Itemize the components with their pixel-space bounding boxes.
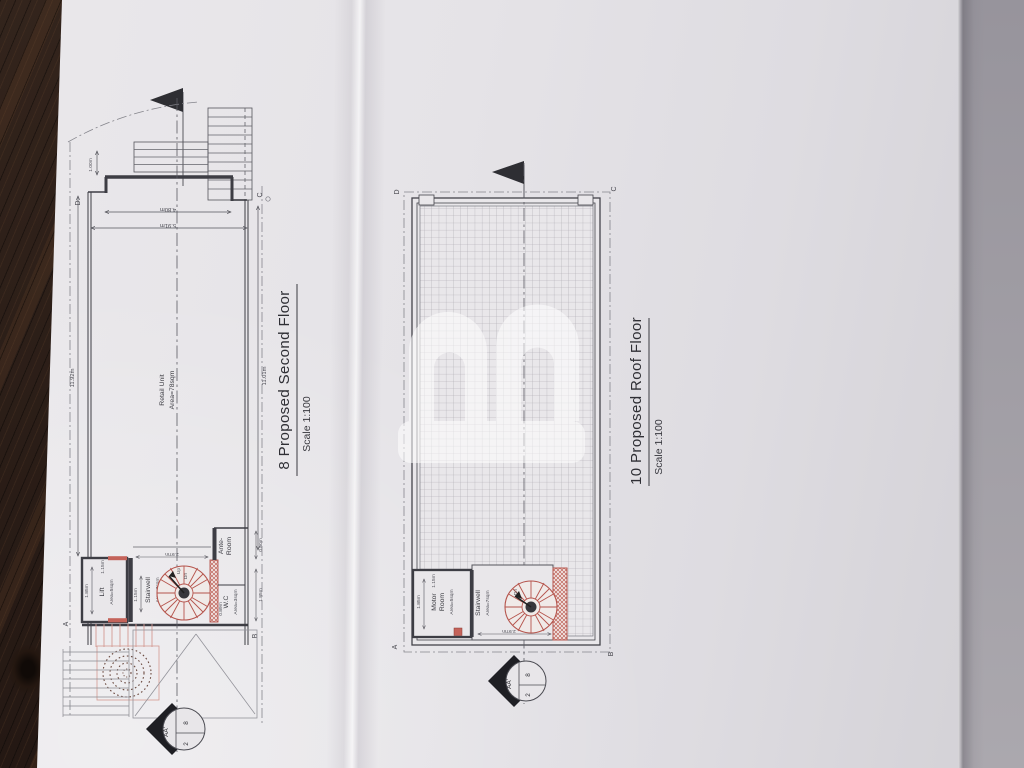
retail-unit-label: Retail Unit bbox=[159, 374, 166, 405]
wall-cap bbox=[419, 195, 434, 205]
stairwell-area: Area=7sqm bbox=[485, 590, 491, 615]
stair-dn-label: Dn bbox=[513, 589, 519, 596]
photo-of-architectural-plans: 1.00m 4.80m 5.91m 11.92m 11.01m Retail U… bbox=[0, 0, 1024, 768]
section-marker: AA' 2 8 bbox=[488, 655, 546, 707]
corner-d: D bbox=[75, 200, 82, 205]
external-stair bbox=[134, 108, 252, 200]
marker-num: 2 bbox=[525, 693, 532, 697]
lift-label: Lift bbox=[99, 587, 106, 596]
dim-motor-d: 1.15m bbox=[431, 574, 437, 588]
plan-title: 10 Proposed Roof Floor bbox=[628, 317, 645, 485]
corner-b: B bbox=[608, 651, 615, 656]
lift-area: Area=5sqm bbox=[109, 579, 115, 604]
red-wall-segment bbox=[108, 556, 127, 560]
tree-icon bbox=[103, 649, 151, 697]
motor-room-area: Area=5sqm bbox=[449, 589, 455, 614]
grid-bubble bbox=[266, 197, 270, 201]
dim-stair-w: 1.15m bbox=[133, 588, 139, 602]
dim-right: 11.01m bbox=[262, 366, 268, 385]
marker-sheet: 8 bbox=[525, 673, 532, 677]
marker-num: 2 bbox=[183, 742, 190, 746]
wc-ante-walls bbox=[214, 528, 248, 585]
dim-bay: 4.80m bbox=[160, 206, 176, 212]
marker-sheet: 8 bbox=[183, 721, 190, 725]
dim-left: 11.92m bbox=[70, 368, 76, 387]
dim-right-lower: 1.85m bbox=[258, 588, 264, 602]
dim-motor-w: 1.85m bbox=[416, 595, 422, 609]
motor-room-label-2: Room bbox=[439, 593, 446, 611]
north-arrow-icon bbox=[150, 88, 183, 186]
red-wall-segment bbox=[108, 618, 127, 622]
section-marker: AA' 2 8 bbox=[146, 703, 205, 755]
stair-up-label: Up bbox=[176, 568, 182, 575]
corner-a: A bbox=[392, 644, 399, 649]
dim-stair-l: 2.97m bbox=[165, 551, 179, 557]
hatched-wall bbox=[210, 560, 218, 622]
marker-label: AA' bbox=[163, 727, 170, 737]
corner-c: C bbox=[257, 192, 264, 197]
plans-drawing: 1.00m 4.80m 5.91m 11.92m 11.01m Retail U… bbox=[0, 0, 1024, 768]
corner-a: A bbox=[63, 621, 70, 626]
corner-d: D bbox=[394, 189, 401, 194]
stair-dn-label: Dn bbox=[183, 573, 189, 580]
corner-c: C bbox=[611, 186, 618, 191]
wc-area: Area=3sqm bbox=[233, 589, 239, 614]
spiral-stair-icon bbox=[505, 581, 557, 633]
ante-room-label-1: Ante- bbox=[218, 538, 225, 554]
top-dimensions bbox=[91, 151, 247, 228]
wall-cap bbox=[578, 195, 593, 205]
motor-room-label-1: Motor bbox=[431, 593, 438, 611]
ante-room-label-2: Room bbox=[226, 537, 233, 555]
dim-wc: 0.89m bbox=[218, 602, 224, 616]
dim-stair-l: 2.97m bbox=[502, 628, 516, 634]
dim-ante: 0.80m bbox=[258, 538, 264, 552]
watermark-bar bbox=[398, 421, 585, 463]
red-wall-segment bbox=[454, 628, 462, 636]
corner-b: B bbox=[252, 633, 259, 638]
stairwell-label: Stairwell bbox=[145, 577, 152, 603]
retail-unit-area: Area=78sqm bbox=[169, 370, 176, 409]
north-arrow-icon bbox=[492, 161, 524, 200]
lower-stair-hatch bbox=[63, 649, 129, 717]
stairwell-label: Stairwell bbox=[475, 590, 482, 616]
dim-lift-d: 1.15m bbox=[100, 560, 106, 574]
wc-label: W.C bbox=[223, 595, 230, 608]
dim-lift-w: 1.85m bbox=[84, 584, 90, 598]
plan-scale: Scale 1:100 bbox=[653, 419, 665, 475]
dim-width: 5.91m bbox=[160, 222, 176, 228]
dim-recess: 1.00m bbox=[88, 158, 94, 172]
marker-label: AA' bbox=[506, 679, 513, 689]
planter bbox=[96, 624, 159, 700]
second-floor-plan: 1.00m 4.80m 5.91m 11.92m 11.01m Retail U… bbox=[63, 88, 313, 755]
plan-title: 8 Proposed Second Floor bbox=[276, 290, 293, 469]
plan-scale: Scale 1:100 bbox=[301, 396, 313, 452]
